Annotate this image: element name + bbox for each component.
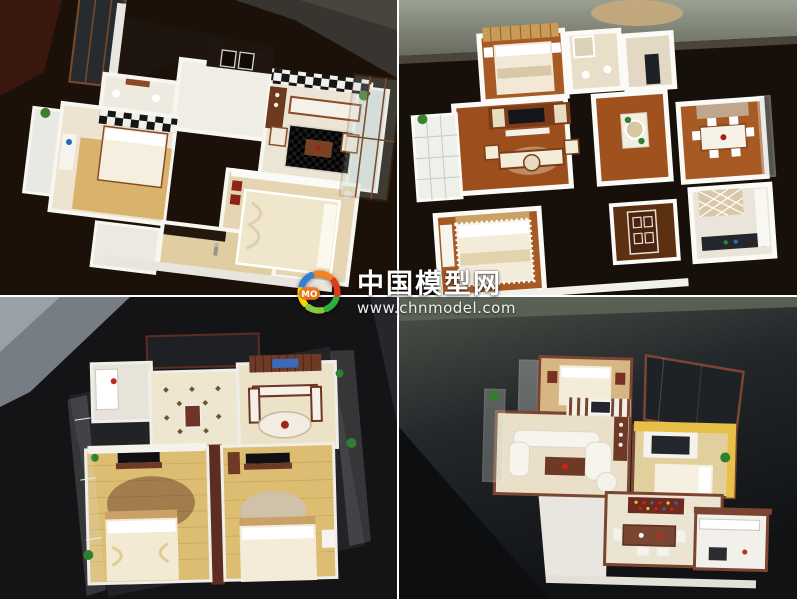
tv (651, 436, 689, 455)
dining-table (623, 525, 676, 546)
tv-stand (116, 462, 162, 469)
striped-accent-panel (566, 397, 630, 417)
bar-cabinet (628, 497, 684, 514)
tv (246, 453, 290, 464)
balcony-left (483, 389, 505, 481)
background-object (591, 0, 683, 26)
photo-model-bottom-left (0, 297, 397, 599)
lattice-screen (698, 188, 744, 217)
dining-chair (637, 547, 649, 555)
tv (118, 452, 160, 463)
armchair (564, 139, 579, 154)
model-scene-bottom-left (0, 297, 397, 599)
corner-glass (518, 360, 537, 414)
armchair (484, 145, 499, 160)
collage-divider-horizontal (0, 295, 797, 297)
kitchen-counter (699, 519, 759, 531)
pillows (242, 526, 314, 540)
chair (547, 371, 557, 383)
apartment-model (67, 331, 372, 597)
chair (615, 373, 625, 385)
model-plinth (536, 493, 608, 584)
pillows (561, 367, 609, 378)
appliance (709, 547, 727, 560)
armchair (269, 127, 287, 147)
photo-model-top-right (399, 0, 797, 295)
pillows (107, 520, 175, 534)
wall-art (231, 180, 242, 191)
photo-collage: MO 中国模型网 www.chnmodel.com (0, 0, 797, 599)
dining-chair (677, 530, 685, 542)
collage-divider-vertical (397, 0, 399, 599)
round-table (523, 154, 540, 171)
photo-model-top-left (0, 0, 397, 295)
model-scene-bottom-right (399, 297, 797, 599)
front-door (627, 210, 658, 254)
model-scene-top-left (0, 0, 397, 295)
tv (272, 358, 298, 368)
dining-chair (613, 529, 621, 541)
model-scene-top-right (399, 0, 797, 295)
side-chair (322, 529, 335, 547)
tv-stand (244, 463, 292, 470)
wall-art (230, 194, 241, 205)
hall-cabinet (184, 405, 201, 427)
sofa-cushions (254, 386, 316, 396)
photo-model-bottom-right (399, 297, 797, 599)
pillows (698, 467, 711, 493)
tv (508, 108, 545, 124)
shower (573, 36, 594, 57)
shelf (228, 452, 241, 474)
dark-column (644, 54, 660, 85)
dining-chair (657, 548, 669, 556)
